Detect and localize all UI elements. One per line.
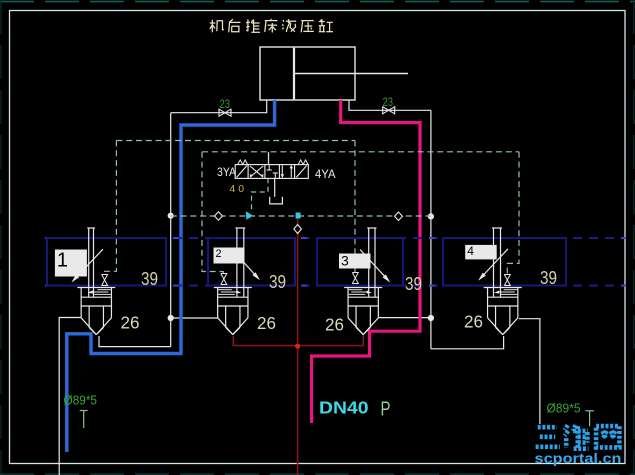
svg-text:39: 39: [405, 274, 422, 294]
svg-text:P: P: [381, 399, 391, 421]
svg-text:Ø89*5: Ø89*5: [64, 393, 98, 408]
svg-text:3YA: 3YA: [217, 165, 236, 179]
svg-text:2: 2: [216, 248, 222, 260]
svg-text:23: 23: [220, 97, 231, 111]
svg-text:Ø89*5: Ø89*5: [547, 402, 581, 416]
svg-text:23: 23: [383, 95, 394, 109]
svg-text:scportal.cn: scportal.cn: [535, 451, 622, 466]
svg-text:39: 39: [540, 268, 557, 288]
svg-text:26: 26: [257, 313, 276, 333]
svg-text:39: 39: [141, 269, 158, 289]
svg-text:4 0: 4 0: [230, 183, 245, 195]
svg-text:4: 4: [467, 244, 474, 258]
svg-text:DN40: DN40: [319, 398, 369, 418]
svg-text:26: 26: [464, 312, 483, 332]
svg-text:26: 26: [121, 313, 140, 333]
svg-text:1: 1: [57, 249, 68, 271]
svg-text:26: 26: [325, 315, 344, 335]
svg-text:39: 39: [269, 272, 286, 292]
svg-text:4YA: 4YA: [315, 167, 336, 181]
svg-text:3: 3: [341, 252, 349, 268]
